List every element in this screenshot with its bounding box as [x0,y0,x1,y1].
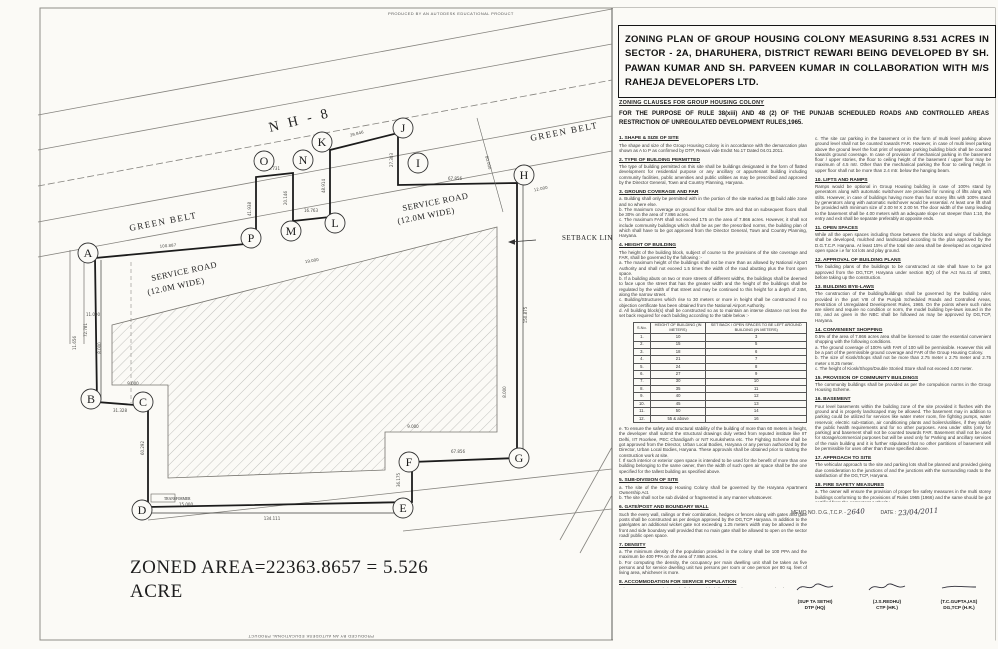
zoning-clause: 1. SHAPE & SIZE OF SITEThe shape and siz… [619,136,807,153]
table-cell: 8. [634,386,651,393]
dimension-label: 60.292 [140,441,145,455]
vertex-letter: N [299,153,308,167]
clause-body: Four level basements within the building… [815,404,991,452]
table-row: 10.4513 [634,400,807,407]
vertex-letter: F [406,455,413,469]
table-header-cell: HEIGHT OF BUILDING (IN METERS) [650,322,706,334]
clauses-column-right: c. The site car parking in the basement … [815,136,991,502]
clause-body: The community buildings shall be provide… [815,382,991,393]
dimension-label: 27.303 [389,153,394,167]
vertex-letter: D [138,503,147,517]
vertex-marker-G: G [509,448,529,468]
plan-label: SETBACK LINE [562,234,618,242]
table-row: 9.4012 [634,393,807,400]
vertex-letter: A [84,246,93,260]
height-setback-table: S.No.HEIGHT OF BUILDING (IN METERS)SET B… [633,322,807,424]
dimension-label: 8.000 [502,386,507,398]
zoning-clause: 6. GATE/POST AND BOUNDARY WALLSuch the e… [619,505,807,538]
table-cell: 11. [634,408,651,415]
dimension-label: 15.000 [179,502,193,507]
dimension-label: 80.000 [484,155,493,170]
table-cell: 10 [706,378,807,385]
clause-body: The building plans of the buildings to b… [815,264,991,280]
table-cell: 11 [706,386,807,393]
clause-heading: 12. APPROVAL OF BUILDING PLANS [815,258,991,263]
table-row: 5.248 [634,363,807,370]
table-cell: 6. [634,371,651,378]
vertex-letter: C [139,395,147,409]
signature-block: (SUP TA SETHI)DTP (HQ) [781,580,849,611]
clause-heading: 13. BUILDING BYE-LAWS [815,285,991,290]
dimension-label: 48.914 [321,179,326,193]
vertex-marker-O: O [254,151,274,171]
zoning-clause: 13. BUILDING BYE-LAWSThe construction of… [815,285,991,323]
clause-body: a. The owner will ensure the provision o… [815,489,991,502]
zoning-clause: 14. CONVENIENT SHOPPING0.5% of the area … [815,328,991,372]
vertex-letter: B [87,392,95,406]
clause-heading: 1. SHAPE & SIZE OF SITE [619,136,807,141]
vertex-letter: K [318,135,327,149]
dimension-label: 16.763 [304,208,318,213]
signature-block: (J.S.REDHU)CTP (HR.) [853,580,921,611]
clause-body: The vehicular approach to the site and p… [815,462,991,478]
clauses-column-left: 1. SHAPE & SIZE OF SITEThe shape and siz… [619,136,807,588]
vertex-letter: J [401,121,406,135]
clause-heading: 10. LIFTS AND RAMPS [815,178,991,183]
zoned-area-text: ZONED AREA=22363.8657 = 5.526 ACRE [130,556,490,604]
clause-heading: 6. GATE/POST AND BOUNDARY WALL [619,505,807,510]
table-cell: 4. [634,356,651,363]
dimension-label: 150.875 [523,306,528,323]
zoning-clause: 7. DENSITYa. The minimum density of the … [619,543,807,576]
signature-scribble [938,580,980,594]
table-cell: 8 [706,363,807,370]
clause-body: a. Building shall only be permitted with… [619,196,807,238]
dimension-label: 20.146 [283,191,288,205]
dimension-label: 9.000 [407,424,419,429]
setback-arrow [508,239,536,245]
dimension-label: 12.000 [533,185,548,193]
zoning-clause: 12. APPROVAL OF BUILDING PLANSThe buildi… [815,258,991,280]
table-cell: 7 [706,356,807,363]
clause-heading: 16. BASEMENT [815,397,991,402]
table-cell: 35 [650,386,706,393]
table-row: 8.3511 [634,386,807,393]
vertex-marker-H: H [514,165,534,185]
clause-body: The height of the building block, subjec… [619,250,807,319]
dimension-label: 41.938 [247,202,252,216]
zoning-clause: 3. GROUND COVERAGE AND FARa. Building sh… [619,190,807,239]
vertex-marker-I: I [408,153,428,173]
clause-heading: 7. DENSITY [619,543,807,548]
dimension-label: 67.856 [448,176,462,181]
dimension-label: 100.887 [159,242,176,248]
vertex-letter: L [331,216,338,230]
drawing-sheet: N H - 8GREEN BELTGREEN BELTSERVICE ROAD(… [0,0,998,649]
table-row: 6.279 [634,371,807,378]
dimension-label: 39.846 [349,129,364,137]
signature-block: (T.C.GUPTA,IAS)DG,TCP (H.R.) [925,580,993,611]
vertex-marker-P: P [241,228,261,248]
table-cell: 3 [706,334,807,341]
zoning-clause: 10. LIFTS AND RAMPSRamps would be option… [815,178,991,222]
dimension-label: 11.000 [86,312,100,317]
zoning-clause: 5. SUB-DIVISION OF SITEa. The site of th… [619,478,807,500]
table-cell: 13 [706,400,807,407]
table-cell: 27 [650,371,706,378]
clause-body: a. The site of the Group Housing Colony … [619,485,807,501]
clause-heading: 8. ACCOMMODATION FOR SERVICE POPULATION [619,580,807,585]
dimension-label: 72.781 [83,323,88,337]
vertex-letter: M [286,224,297,238]
vertex-marker-F: F [399,452,419,472]
autodesk-stamp-top: PRODUCED BY AN AUTODESK EDUCATIONAL PROD… [388,11,514,16]
table-cell: 12. [634,415,651,422]
vertex-letter: H [520,168,529,182]
table-cell: 10 [650,334,706,341]
vertex-marker-K: K [312,132,332,152]
table-header-cell: SET BACK / OPEN SPACES TO BE LEFT AROUND… [706,322,807,334]
plan-label: GREEN BELT [529,120,599,143]
table-cell: 30 [650,378,706,385]
table-header-cell: S.No. [634,322,651,334]
table-cell: 24 [650,363,706,370]
table-cell: 16 [706,415,807,422]
table-cell: 45 [650,400,706,407]
dimension-label: 8.000 [97,342,102,354]
clause-heading: 11. OPEN SPACES [815,226,991,231]
table-cell: 5 [706,341,807,348]
signatory-title: DG,TCP (H.R.) [925,605,993,611]
table-cell: 15 [650,341,706,348]
dimension-label: 9.000 [127,381,139,386]
signature-scribble [794,580,836,594]
table-cell: 40 [650,393,706,400]
table-cell: 18 [650,348,706,355]
clause-body: The construction of the building/buildin… [815,291,991,323]
vertex-letter: P [248,231,255,245]
zoning-clause: 18. FIRE SAFETY MEASURESa. The owner wil… [815,483,991,502]
dimension-label: 11.656 [72,336,77,350]
signature-row: (SUP TA SETHI)DTP (HQ)(J.S.REDHU)CTP (HR… [781,580,993,611]
table-cell: 2. [634,341,651,348]
clause-body: Ramps would be optional in Group Housing… [815,184,991,221]
title-text: ZONING PLAN OF GROUP HOUSING COLONY MEAS… [625,34,989,88]
dimension-label: 31.328 [113,408,127,413]
vertex-marker-E: E [393,498,413,518]
table-cell: 6 [706,348,807,355]
table-cell: 50 [650,408,706,415]
purpose-statement: FOR THE PURPOSE OF RULE 38(xiii) AND 48 … [619,110,989,127]
clauses-heading: ZONING CLAUSES FOR GROUP HOUSING COLONY [619,100,764,106]
table-row: 3.186 [634,348,807,355]
vertex-marker-A: A [78,243,98,263]
table-row: 12.55 & above16 [634,415,807,422]
signatory-title: CTP (HR.) [853,605,921,611]
memo-line: MEMO NO. D.G.,T.C.P. - 2640 DATE : 23/04… [791,508,991,516]
table-cell: 14 [706,408,807,415]
clause-heading: 14. CONVENIENT SHOPPING [815,328,991,333]
vertex-marker-N: N [293,150,313,170]
table-row: 4.217 [634,356,807,363]
clause-body: The shape and size of the Group Housing … [619,143,807,154]
autodesk-stamp-bottom: PRODUCED BY AN AUTODESK EDUCATIONAL PROD… [248,634,374,639]
title-block: ZONING PLAN OF GROUP HOUSING COLONY MEAS… [618,25,996,98]
zoning-clause: 17. APPROACH TO SITEThe vehicular approa… [815,456,991,478]
clause-body: Adequate accommodation shall be provided… [619,587,807,588]
memo-date-label: DATE : [881,510,897,516]
zoning-clause: 8. ACCOMMODATION FOR SERVICE POPULATIONA… [619,580,807,588]
plan-label: N H - 8 [267,106,332,136]
vertex-letter: G [515,451,524,465]
clause-heading: 15. PROVISION OF COMMUNITY BUILDINGS [815,376,991,381]
clause-body: Such the every wall, railings or their c… [619,512,807,538]
zoning-clause: 4. HEIGHT OF BUILDINGThe height of the b… [619,243,807,474]
clause-heading: 3. GROUND COVERAGE AND FAR [619,190,807,195]
memo-number: 2640 [847,507,865,516]
dimension-label: 134.111 [264,516,281,521]
vertex-marker-J: J [393,118,413,138]
vertex-letter: O [260,154,269,168]
clause-body: a. The minimum density of the population… [619,549,807,575]
table-cell: 9. [634,393,651,400]
clause-heading: 18. FIRE SAFETY MEASURES [815,483,991,488]
vertex-marker-M: M [281,221,301,241]
signature-scribble [866,580,908,594]
clause-heading: 2. TYPE OF BUILDING PERMITTED [619,158,807,163]
vertex-marker-D: D [132,500,152,520]
table-cell: 7. [634,378,651,385]
vertex-letter: I [416,156,420,170]
plan-label: TRANSFORMER [164,497,191,501]
table-cell: 5. [634,363,651,370]
table-cell: 9 [706,371,807,378]
zoning-clause: c. The site car parking in the basement … [815,136,991,173]
clause-body: e. To ensure the safety and structural s… [619,426,807,474]
table-cell: 55 & above [650,415,706,422]
table-row: 11.5014 [634,408,807,415]
memo-label: MEMO NO. D.G.,T.C.P. - [791,510,846,516]
zoning-clause: 16. BASEMENTFour level basements within … [815,397,991,451]
dimension-label: 19.000 [304,257,319,264]
vertex-marker-B: B [81,389,101,409]
vertex-marker-C: C [133,392,153,412]
vertex-marker-L: L [325,213,345,233]
table-cell: 12 [706,393,807,400]
clause-heading: 5. SUB-DIVISION OF SITE [619,478,807,483]
dimension-label: 36.175 [396,473,401,487]
clause-body: 0.5% of the area of 7.866 acres area sha… [815,334,991,371]
memo-date: 23/04/2011 [897,507,938,518]
vertex-letter: E [399,501,406,515]
clause-body: The type of building permitted on this s… [619,164,807,185]
table-cell: 10. [634,400,651,407]
table-cell: 21 [650,356,706,363]
zoning-clause: 11. OPEN SPACESWhile all the open spaces… [815,226,991,254]
table-cell: 1. [634,334,651,341]
zoning-clause: 15. PROVISION OF COMMUNITY BUILDINGSThe … [815,376,991,393]
clause-heading: 4. HEIGHT OF BUILDING [619,243,807,248]
buildable-zone-hatch [112,227,497,478]
clause-heading: 17. APPROACH TO SITE [815,456,991,461]
table-row: 1.103 [634,334,807,341]
table-row: 2.155 [634,341,807,348]
table-row: 7.3010 [634,378,807,385]
clause-body: While all the open spaces including thos… [815,232,991,253]
clause-body: c. The site car parking in the basement … [815,136,991,173]
dimension-label: 67.856 [451,449,465,454]
table-cell: 3. [634,348,651,355]
zoning-clause: 2. TYPE OF BUILDING PERMITTEDThe type of… [619,158,807,186]
clauses-panel: ZONING PLAN OF GROUP HOUSING COLONY MEAS… [613,8,995,641]
signatory-title: DTP (HQ) [781,605,849,611]
